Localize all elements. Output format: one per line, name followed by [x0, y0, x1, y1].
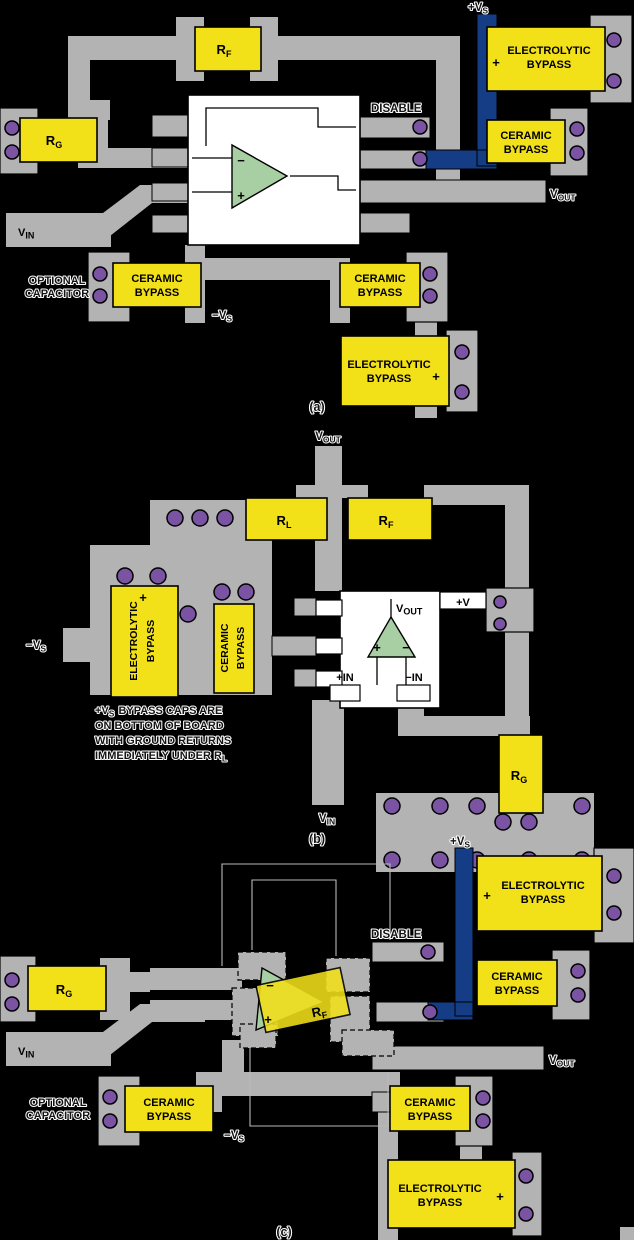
pcb-layout-figure: − + RF RG ELECTROLYTIC BYPASS + CERAMIC … [0, 0, 634, 1240]
inverting-input-mark: − [237, 153, 245, 168]
ceramic-brc-label-line1: CERAMIC [404, 1097, 455, 1109]
ceramic-bypass-bottom-right [340, 263, 420, 307]
via [574, 798, 590, 814]
ceramic-label-line2: BYPASS [504, 144, 548, 156]
electrolytic-b-plus-mark: + [139, 590, 147, 605]
via [494, 596, 506, 608]
caption-b: (b) [309, 832, 325, 846]
note-line3: WITH GROUND RETURNS [95, 735, 231, 747]
vout-trace [356, 180, 546, 203]
via [571, 988, 585, 1002]
via [570, 146, 584, 160]
electrolytic-brc-label-line2: BYPASS [418, 1197, 462, 1209]
via [432, 798, 448, 814]
ic-pin-white [316, 638, 342, 654]
pcb-layout-svg: − + RF RG ELECTROLYTIC BYPASS + CERAMIC … [0, 0, 634, 1240]
via [423, 289, 437, 303]
nc-pin-pad [356, 213, 410, 233]
minus-in-label: −IN [405, 672, 422, 684]
caption-a: (a) [309, 400, 324, 414]
electrolytic-plus-mark: + [492, 55, 500, 70]
ceramic-blc-label-line2: BYPASS [147, 1111, 191, 1123]
optional-capacitor-c-line1: OPTIONAL [30, 1097, 87, 1109]
ceramic-brc-label-line2: BYPASS [408, 1111, 452, 1123]
optional-capacitor-line1: OPTIONAL [29, 275, 86, 287]
optional-capacitor-line2: CAPACITOR [25, 288, 89, 300]
via [5, 997, 19, 1011]
via [519, 1169, 533, 1183]
plus-in-pin [330, 685, 360, 701]
via [421, 945, 435, 959]
via [5, 973, 19, 987]
via [432, 852, 448, 868]
plus-v-via-pad [486, 588, 534, 632]
via [469, 798, 485, 814]
via [214, 584, 230, 600]
ceramic-bypass-top-right-c [477, 960, 557, 1006]
rf-resistor-b [348, 498, 432, 540]
via [413, 120, 427, 134]
via [521, 814, 537, 830]
via [607, 869, 621, 883]
electrolytic-brc-label-line1: ELECTROLYTIC [398, 1183, 481, 1195]
via [93, 267, 107, 281]
via [607, 74, 621, 88]
noninverting-input-mark: + [237, 188, 245, 203]
via [103, 1090, 117, 1104]
ceramic-bl-label-line1: CERAMIC [131, 273, 182, 285]
via [192, 510, 208, 526]
electrolytic-br-plus-mark: + [432, 369, 440, 384]
dashed-pad [342, 1030, 394, 1056]
rg-resistor-b [499, 735, 543, 813]
via [607, 33, 621, 47]
ceramic-bypass-bottom-left [113, 263, 201, 307]
via [384, 852, 400, 868]
electrolytic-b-label-line2: BYPASS [145, 620, 157, 662]
via [103, 1114, 117, 1128]
ceramic-bypass-bottom-left-c [125, 1086, 213, 1132]
ceramic-b-label-line2: BYPASS [235, 627, 247, 669]
electrolytic-trc-label-line1: ELECTROLYTIC [501, 880, 584, 892]
ceramic-trc-label-line1: CERAMIC [491, 971, 542, 983]
vin-trace-b [312, 700, 344, 805]
note-line2: ON BOTTOM OF BOARD [95, 720, 224, 732]
via [150, 568, 166, 584]
via [519, 1207, 533, 1221]
via [495, 814, 511, 830]
disable-label-c: DISABLE [371, 929, 422, 941]
ceramic-label-line1: CERAMIC [500, 130, 551, 142]
plus-in-label: +IN [336, 672, 353, 684]
ic-pin-white [316, 600, 342, 616]
via [423, 267, 437, 281]
caption-c: (c) [276, 1225, 291, 1239]
via [117, 568, 133, 584]
plus-mark-b: + [373, 640, 381, 655]
via [607, 906, 621, 920]
via [455, 385, 469, 399]
ceramic-br-label-line1: CERAMIC [354, 273, 405, 285]
electrolytic-brc-plus-mark: + [496, 1189, 504, 1204]
via [476, 1091, 490, 1105]
electrolytic-br-label-line1: ELECTROLYTIC [347, 359, 430, 371]
electrolytic-br-label-line2: BYPASS [367, 373, 411, 385]
minus-in-pin [397, 685, 430, 701]
via [423, 1005, 437, 1019]
via [238, 584, 254, 600]
electrolytic-trc-plus-mark: + [483, 888, 491, 903]
electrolytic-label-line1: ELECTROLYTIC [507, 45, 590, 57]
via [476, 1114, 490, 1128]
rl-resistor [246, 498, 327, 540]
via [5, 121, 19, 135]
ceramic-br-label-line2: BYPASS [358, 287, 402, 299]
ceramic-bl-label-line2: BYPASS [135, 287, 179, 299]
inverting-input-mark-c: − [266, 978, 274, 993]
note-line4: IMMEDIATELY UNDER RL [95, 750, 227, 764]
via [494, 618, 506, 630]
plus-v-pin-label: +V [456, 597, 470, 609]
disable-label: DISABLE [371, 103, 422, 115]
via [93, 289, 107, 303]
minus-mark-b: − [402, 640, 410, 655]
via [217, 510, 233, 526]
via [571, 964, 585, 978]
via [5, 145, 19, 159]
via [180, 606, 196, 622]
via [167, 510, 183, 526]
electrolytic-br-via-pad-c [512, 1152, 542, 1236]
electrolytic-label-line2: BYPASS [527, 59, 571, 71]
ceramic-b-label-line1: CERAMIC [219, 623, 231, 672]
noninverting-input-mark-c: + [264, 1012, 272, 1027]
ceramic-trc-label-line2: BYPASS [495, 985, 539, 997]
electrolytic-trc-label-line2: BYPASS [521, 894, 565, 906]
via [413, 152, 427, 166]
electrolytic-b-label-line1: ELECTROLYTIC [128, 601, 140, 681]
via [570, 122, 584, 136]
optional-capacitor-c-line2: CAPACITOR [26, 1110, 90, 1122]
ceramic-blc-label-line1: CERAMIC [143, 1097, 194, 1109]
via [384, 798, 400, 814]
vout-trace-c [372, 1046, 544, 1070]
via [455, 345, 469, 359]
